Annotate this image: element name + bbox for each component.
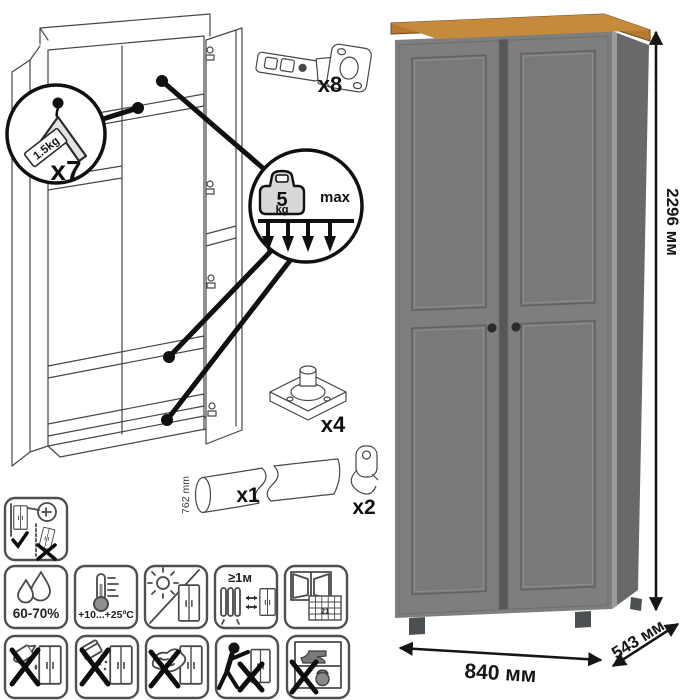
sheet-canvas: 1.5kg x7 5 kg max — [0, 0, 683, 700]
wardrobe-door-right — [508, 36, 608, 609]
icon-min-distance-from-heat: ≥1м — [215, 566, 277, 628]
icon-ventilation: 21 — [285, 566, 347, 628]
wardrobe-front — [395, 31, 612, 618]
icon-no-scrubbing — [146, 636, 208, 698]
icon-avoid-direct-sunlight — [145, 566, 207, 628]
rod-holder-part: x2 — [351, 446, 378, 519]
width-label: 840 мм — [464, 660, 537, 687]
dimension-height: 2296 мм — [656, 32, 682, 610]
wardrobe-render: 2296 мм 840 мм 543 мм — [391, 14, 682, 687]
depth-label: 543 мм — [608, 616, 667, 663]
foot-part: x4 — [270, 366, 346, 437]
care-icons-grid: 60-70% +10...+25ºC ≥1м — [5, 498, 349, 698]
height-label: 2296 мм — [663, 188, 682, 256]
wardrobe-side-panel — [612, 31, 649, 609]
humidity-label: 60-70% — [13, 606, 60, 621]
kettlebell-icon — [316, 670, 329, 685]
min-distance-label: ≥1м — [228, 570, 252, 585]
load-limit-callout: 5 kg max — [250, 150, 362, 262]
icon-no-abrasive-powder — [76, 636, 138, 698]
icon-no-liquids — [5, 636, 67, 698]
icon-no-heavy-items — [287, 636, 349, 698]
assembly-diagram: 1.5kg x7 5 kg max — [7, 14, 378, 519]
wardrobe-carcass-wireframe — [12, 14, 242, 466]
icon-humidity: 60-70% — [5, 566, 67, 628]
side-edge-highlight — [612, 31, 617, 609]
hinge-qty-label: x8 — [318, 72, 342, 97]
product-sheet: 1.5kg x7 5 kg max — [0, 0, 683, 700]
hook-qty-label: x2 — [352, 496, 375, 519]
hinge-part: x8 — [255, 32, 373, 97]
icon-secure-to-wall — [5, 498, 67, 560]
calendar-icon: 21 — [309, 596, 341, 620]
temperature-label: +10...+25ºC — [78, 609, 134, 621]
rod-part: x1 762 mm — [180, 459, 340, 514]
hanger-callout: 1.5kg x7 — [7, 85, 105, 186]
load-max-label: max — [320, 189, 351, 206]
wardrobe-door-left — [399, 41, 499, 614]
foot-qty-label: x4 — [321, 412, 346, 437]
icon-temperature: +10...+25ºC — [75, 566, 137, 628]
callout-lines — [103, 75, 292, 426]
hanger-qty-label: x7 — [50, 155, 81, 186]
rod-qty-label: x1 — [236, 484, 260, 507]
dimension-width: 840 мм — [400, 648, 601, 687]
rod-length-label: 762 mm — [180, 476, 192, 514]
dimension-depth: 543 мм — [608, 616, 678, 666]
icon-no-dragging — [216, 636, 278, 698]
calendar-day-label: 21 — [321, 607, 329, 616]
load-unit-label: kg — [276, 204, 289, 216]
